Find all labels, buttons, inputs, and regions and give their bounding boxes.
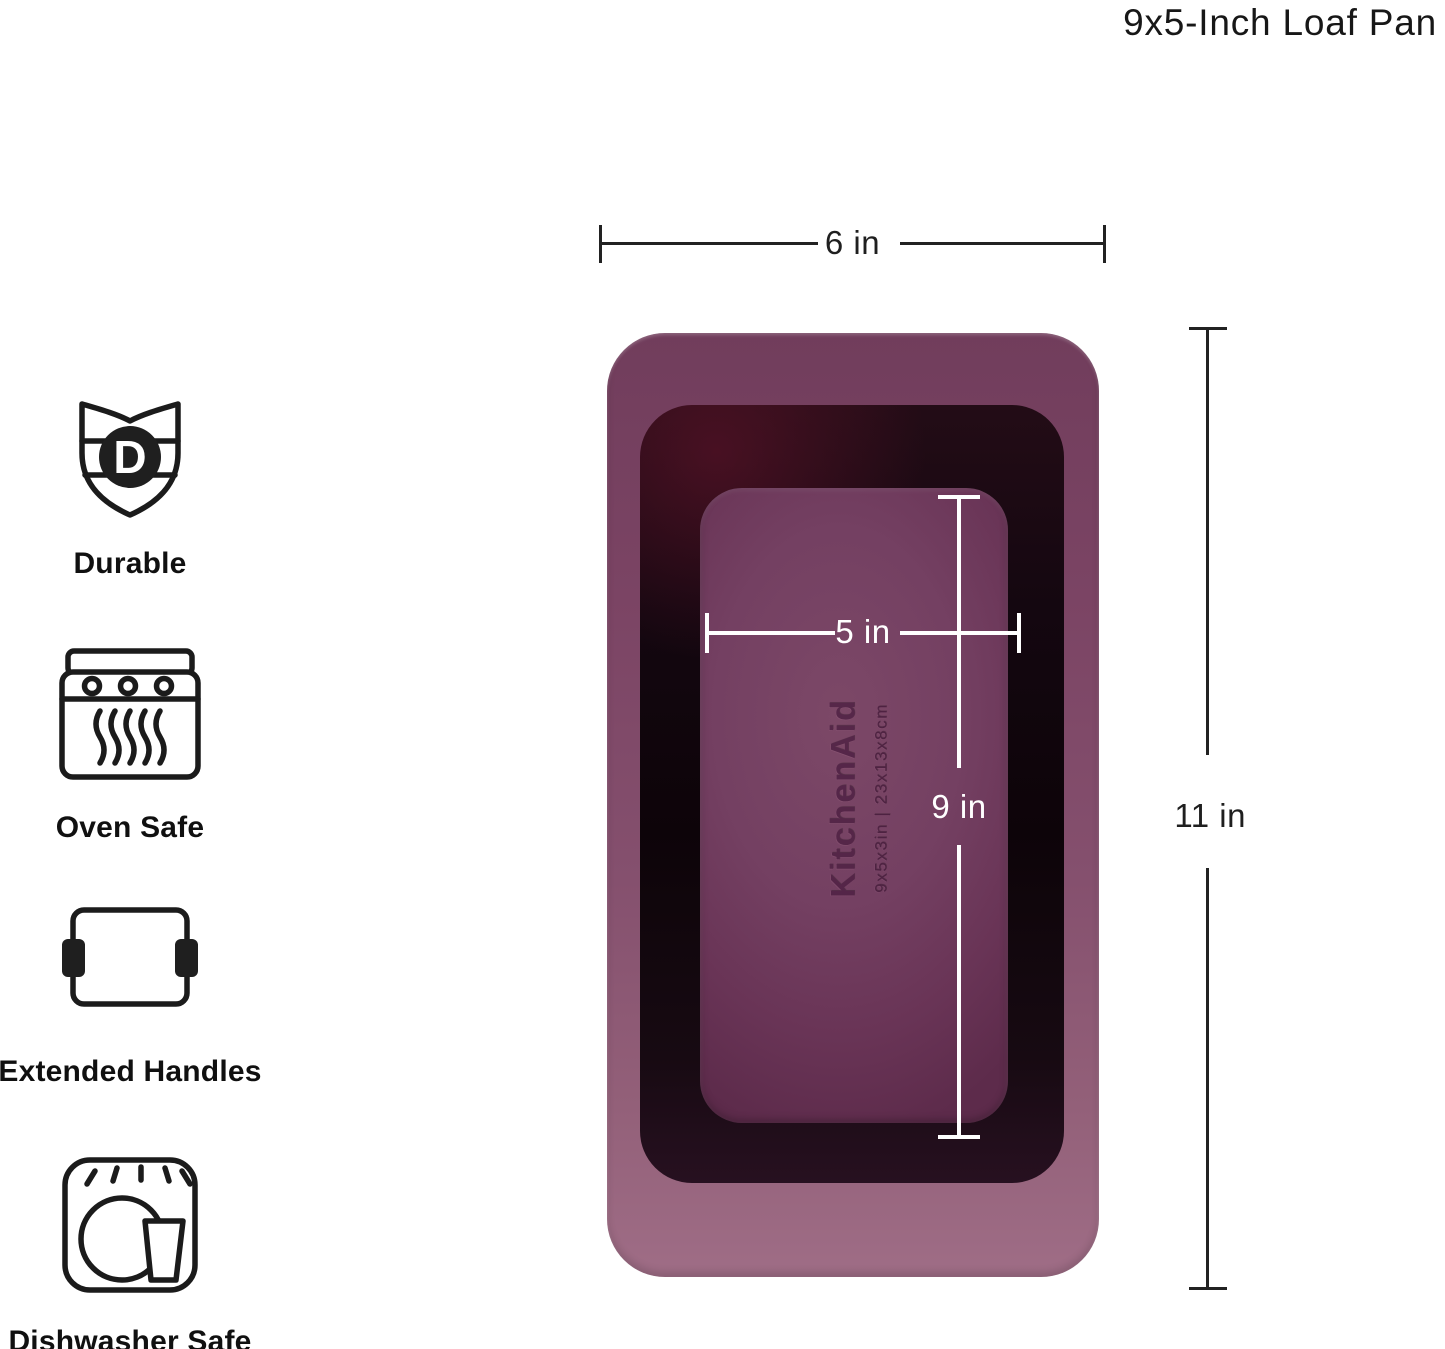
dimension-label-inner-length: 9 in: [931, 788, 986, 826]
brand-logo-text: KitchenAid: [825, 698, 864, 897]
oven-icon: [59, 648, 201, 785]
dimension-outer-width: 6 in: [599, 225, 1106, 263]
dimension-tick: [938, 1135, 980, 1139]
feature-durable: D Durable: [0, 383, 270, 581]
extended-handles-icon: [62, 906, 198, 1013]
feature-extended-handles: Extended Handles: [0, 906, 270, 1089]
dimension-label-outer-length: 11 in: [1174, 797, 1246, 835]
svg-text:D: D: [113, 431, 146, 483]
loaf-pan-outer-rim: KitchenAid 9x5x3in | 23x13x8cm: [607, 333, 1099, 1277]
dimension-line-segment: [1206, 868, 1209, 1287]
dimension-line-segment: [900, 242, 1103, 245]
dimension-line-segment: [957, 499, 961, 768]
feature-label-oven-safe: Oven Safe: [56, 811, 205, 845]
dimension-tick: [1017, 613, 1021, 653]
embossed-size-text: 9x5x3in | 23x13x8cm: [872, 703, 892, 893]
dimension-tick: [1189, 1287, 1227, 1290]
feature-label-dishwasher-safe: Dishwasher Safe: [8, 1325, 251, 1349]
dimension-inner-length: 9 in: [938, 495, 980, 1139]
dimension-line-segment: [957, 845, 961, 1135]
page-title: 9x5-Inch Loaf Pan: [1123, 2, 1437, 44]
feature-label-durable: Durable: [73, 547, 186, 581]
dimension-tick: [1103, 225, 1106, 263]
durable-shield-icon: D: [71, 383, 189, 525]
feature-oven-safe: Oven Safe: [0, 648, 270, 845]
dimension-outer-length: 11 in: [1189, 327, 1227, 1290]
product-infographic: 9x5-Inch Loaf Pan D Durable: [0, 0, 1445, 1349]
pan-embossed-text: KitchenAid 9x5x3in | 23x13x8cm: [825, 698, 892, 897]
feature-label-extended-handles: Extended Handles: [0, 1055, 262, 1089]
dimension-line-segment: [1206, 330, 1209, 755]
feature-dishwasher-safe: Dishwasher Safe: [0, 1156, 270, 1349]
dishwasher-icon: [61, 1156, 199, 1299]
